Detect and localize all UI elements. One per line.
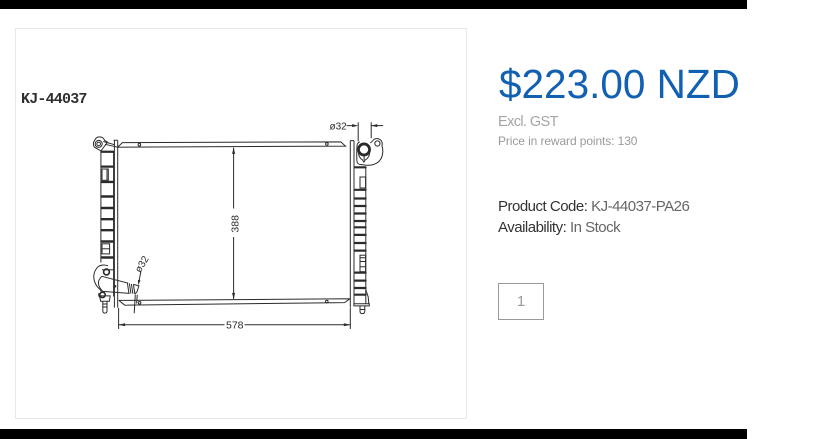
- svg-text:388: 388: [229, 215, 241, 233]
- svg-text:ø32: ø32: [133, 254, 152, 275]
- svg-text:578: 578: [226, 320, 244, 332]
- svg-text:ø32: ø32: [330, 121, 348, 132]
